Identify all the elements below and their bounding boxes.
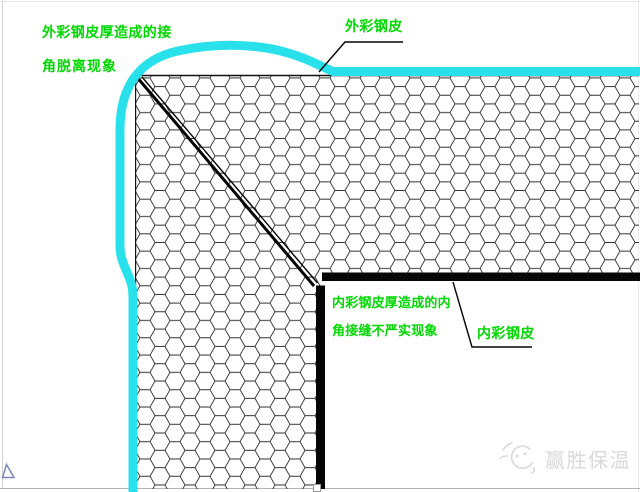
outer-defect-label-line1: 外彩钢皮厚造成的接: [42, 24, 172, 40]
inner-sheet-vertical: [316, 286, 325, 490]
inner-defect-label-line1: 内彩钢皮厚造成的内: [332, 295, 451, 310]
inner-sheet-horizontal: [322, 273, 640, 282]
insulation-region: [135, 75, 639, 489]
inner-defect-label-line2: 角接缝不严实现象: [332, 323, 438, 338]
brand-watermark: 赢胜保温: [500, 443, 631, 473]
brand-icon: [500, 443, 534, 473]
brand-name: 赢胜保温: [545, 449, 631, 472]
diagram-canvas: 外彩钢皮厚造成的接 角脱离现象 外彩钢皮 内彩钢皮厚造成的内 角接缝不严实现象 …: [0, 0, 640, 492]
outer-sheet-label: 外彩钢皮: [345, 18, 403, 34]
grip-handle: [314, 485, 321, 492]
ucs-triangle-icon: [3, 465, 15, 478]
corner-detail-drawing: 外彩钢皮厚造成的接 角脱离现象 外彩钢皮 内彩钢皮厚造成的内 角接缝不严实现象 …: [0, 0, 640, 492]
outer-defect-label-line2: 角脱离现象: [42, 58, 117, 74]
inner-sheet-label: 内彩钢皮: [477, 325, 535, 341]
